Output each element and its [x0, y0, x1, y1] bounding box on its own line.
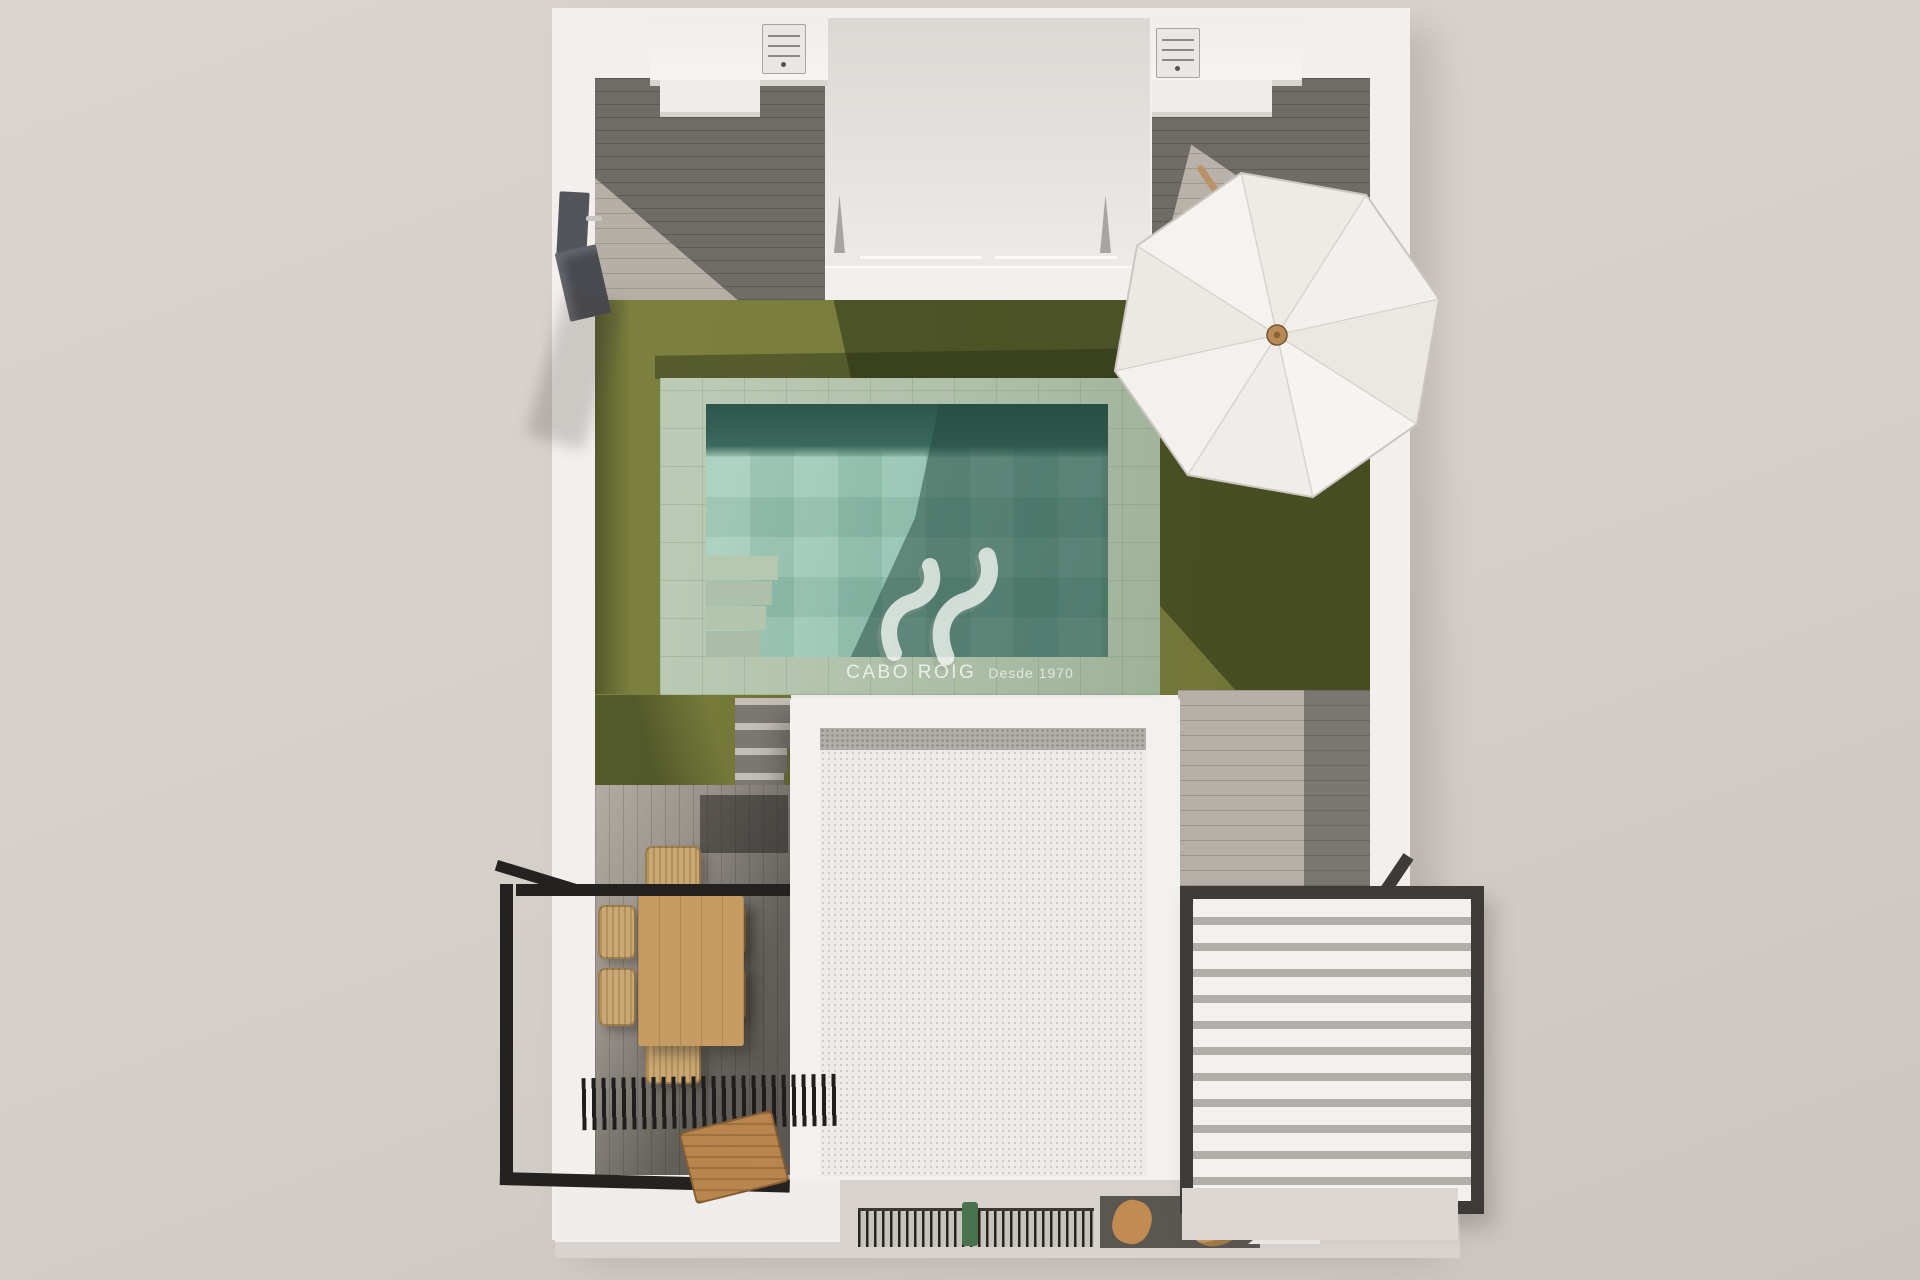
stair-tread — [735, 723, 790, 730]
gravel-border — [820, 728, 1146, 750]
pool-step — [706, 631, 760, 657]
sliding-door-line — [995, 256, 1117, 259]
pergola-left-post — [500, 884, 513, 1184]
shower-faucet — [586, 216, 602, 221]
ac-platform-right-step — [1152, 80, 1272, 117]
sliding-door-line — [860, 256, 982, 259]
right-side-deck — [1178, 690, 1370, 888]
pergola-top-beam — [516, 884, 790, 896]
roof-membrane — [820, 750, 1146, 1176]
roof-terrace — [790, 698, 1180, 1208]
pool — [706, 404, 1108, 657]
stair-riser — [735, 730, 790, 748]
dining-table — [638, 896, 744, 1046]
stair-riser — [735, 755, 787, 773]
stair-tread — [735, 748, 787, 755]
louver-roof — [1180, 886, 1484, 1214]
louver-ground — [1182, 1188, 1458, 1240]
pool-step — [706, 556, 778, 580]
pool-step — [706, 606, 766, 630]
plant — [962, 1202, 978, 1246]
pergola-slat-roof — [582, 1074, 841, 1130]
ac-unit-icon — [762, 24, 806, 74]
stair-tread — [735, 773, 784, 780]
render-scene: CABO ROIG Desde 1970 — [0, 0, 1920, 1280]
stair-riser — [735, 705, 793, 723]
deck-landing-shadow — [700, 795, 788, 853]
dining-chair — [598, 968, 636, 1026]
ac-platform-left-step — [660, 80, 760, 117]
ac-unit-icon — [1156, 28, 1200, 78]
stair-tread — [735, 698, 793, 705]
garden-stairs — [735, 698, 793, 798]
dining-chair — [598, 905, 636, 959]
parasol — [1102, 160, 1452, 510]
wall-shadow-on-deck — [1304, 690, 1370, 888]
pool-step — [706, 581, 772, 605]
pool-steps — [706, 556, 778, 657]
